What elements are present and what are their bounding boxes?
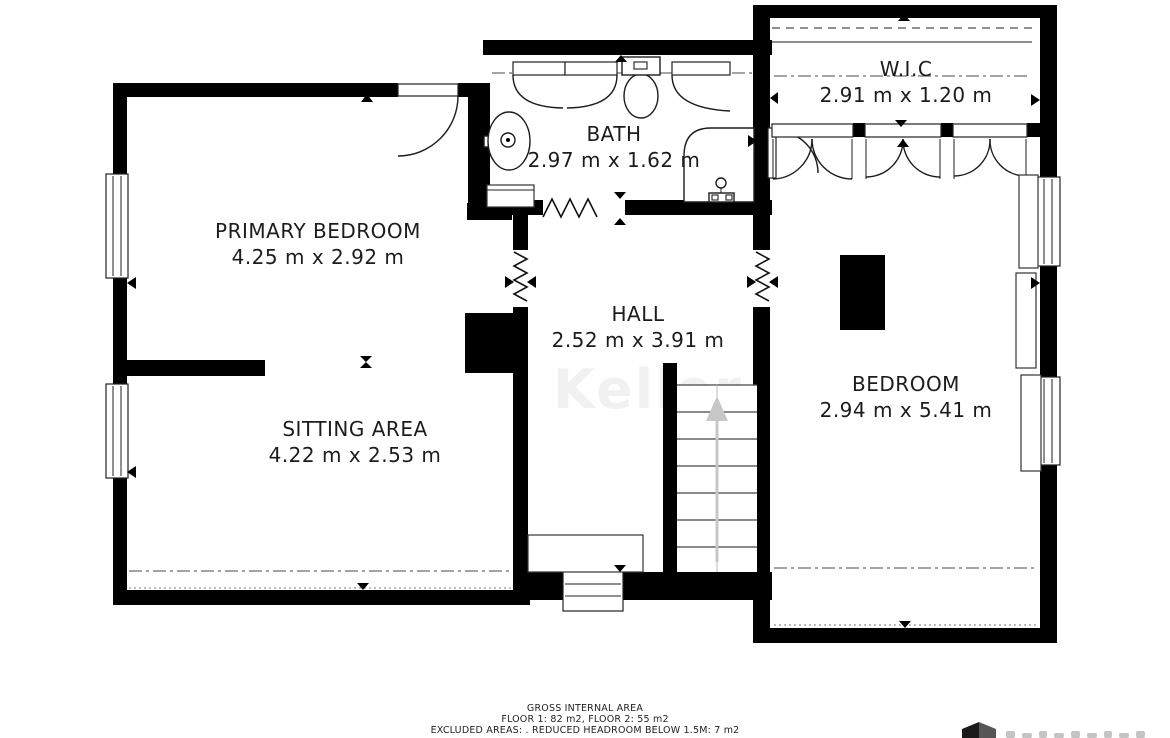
bedroom-radiator-upper: [1019, 175, 1038, 268]
footer: GROSS INTERNAL AREA FLOOR 1: 82 m2, FLOO…: [431, 703, 740, 736]
marker-wic-left: [770, 92, 778, 104]
wall-segment: [513, 215, 528, 250]
wall-segment: [755, 5, 1057, 18]
opening-zigzag-bath: [543, 199, 597, 217]
bedroom-radiator-lower: [1021, 375, 1041, 471]
marker-window-left-upper: [127, 277, 136, 289]
marker-divider-top: [360, 356, 372, 362]
chimney: [840, 255, 885, 330]
toilet: [622, 57, 660, 118]
room-label-hall: HALL 2.52 m x 3.91 m: [552, 302, 725, 352]
room-name: BATH: [586, 122, 641, 146]
room-name: BEDROOM: [852, 372, 960, 396]
wall-segment: [663, 363, 677, 572]
footer-floor-areas: FLOOR 1: 82 m2, FLOOR 2: 55 m2: [501, 714, 668, 725]
room-name: PRIMARY BEDROOM: [215, 219, 421, 243]
marker-hall-opening-left-a: [505, 276, 514, 288]
marker-sitting-bottom: [357, 583, 369, 590]
marker-bath-opening-bottom: [614, 218, 626, 225]
logo-mark-right: [979, 722, 996, 738]
logo-mark-left: [962, 722, 979, 738]
hall-cabinet: [528, 535, 643, 572]
logo-text-fragments: [1006, 731, 1145, 738]
marker-bath-opening-top: [614, 192, 626, 199]
room-dimensions: 2.52 m x 3.91 m: [552, 328, 725, 352]
room-label-wic: W.I.C 2.91 m x 1.20 m: [820, 57, 993, 107]
marker-wic-right: [1031, 94, 1040, 106]
roof-window-bath-left: [513, 62, 617, 108]
floor-plan: Keller: [0, 0, 1170, 738]
wall-segment: [113, 83, 398, 97]
marker-hall-opening-left-b: [527, 276, 536, 288]
opening-zigzag-hall-right: [756, 252, 769, 301]
wall-segment: [513, 572, 772, 600]
wall-segment: [1040, 5, 1057, 643]
roof-window-bath-right: [672, 62, 730, 111]
wall-segment: [941, 123, 953, 137]
room-label-sitting-area: SITTING AREA 4.22 m x 2.53 m: [269, 417, 442, 467]
room-name: SITTING AREA: [282, 417, 427, 441]
wall-segment: [853, 123, 865, 137]
room-label-primary-bedroom: PRIMARY BEDROOM 4.25 m x 2.92 m: [215, 219, 421, 269]
window-bedroom-upper: [1036, 177, 1060, 266]
marker-divider-bottom: [360, 362, 372, 368]
window-left-lower: [106, 384, 128, 478]
room-name: W.I.C: [880, 57, 933, 81]
wall-segment: [1027, 123, 1040, 137]
partner-logo: [962, 722, 1145, 738]
stairs: [677, 385, 757, 572]
door-primary-bedroom: [398, 84, 458, 156]
footer-gross-area: GROSS INTERNAL AREA: [527, 703, 643, 714]
marker-hall-opening-right-a: [747, 276, 756, 288]
marker-hall-opening-right-b: [769, 276, 778, 288]
room-name: HALL: [611, 302, 664, 326]
opening-zigzag-hall-left: [514, 252, 527, 301]
wall-segment: [755, 628, 1057, 643]
marker-closet-door: [897, 139, 909, 147]
room-label-bath: BATH 2.97 m x 1.62 m: [528, 122, 701, 172]
footer-excluded-areas: EXCLUDED AREAS: . REDUCED HEADROOM BELOW…: [431, 725, 740, 736]
room-dimensions: 2.97 m x 1.62 m: [528, 148, 701, 172]
window-hall-bottom: [563, 571, 623, 611]
wall-segment: [465, 313, 528, 373]
room-dimensions: 4.22 m x 2.53 m: [269, 443, 442, 467]
closet-doors-wic: [772, 124, 1027, 179]
floor-plan-canvas: Keller: [0, 0, 1170, 738]
room-dimensions: 2.94 m x 5.41 m: [820, 398, 993, 422]
room-dimensions: 4.25 m x 2.92 m: [232, 245, 405, 269]
room-label-bedroom: BEDROOM 2.94 m x 5.41 m: [820, 372, 993, 422]
wall-segment: [113, 360, 265, 376]
wall-segment: [113, 83, 127, 605]
window-left-upper: [106, 174, 128, 278]
wall-segment: [113, 590, 530, 605]
room-dimensions: 2.91 m x 1.20 m: [820, 83, 993, 107]
wall-segment: [483, 40, 772, 55]
sink-cabinet: [487, 185, 534, 207]
sink: [484, 112, 530, 170]
